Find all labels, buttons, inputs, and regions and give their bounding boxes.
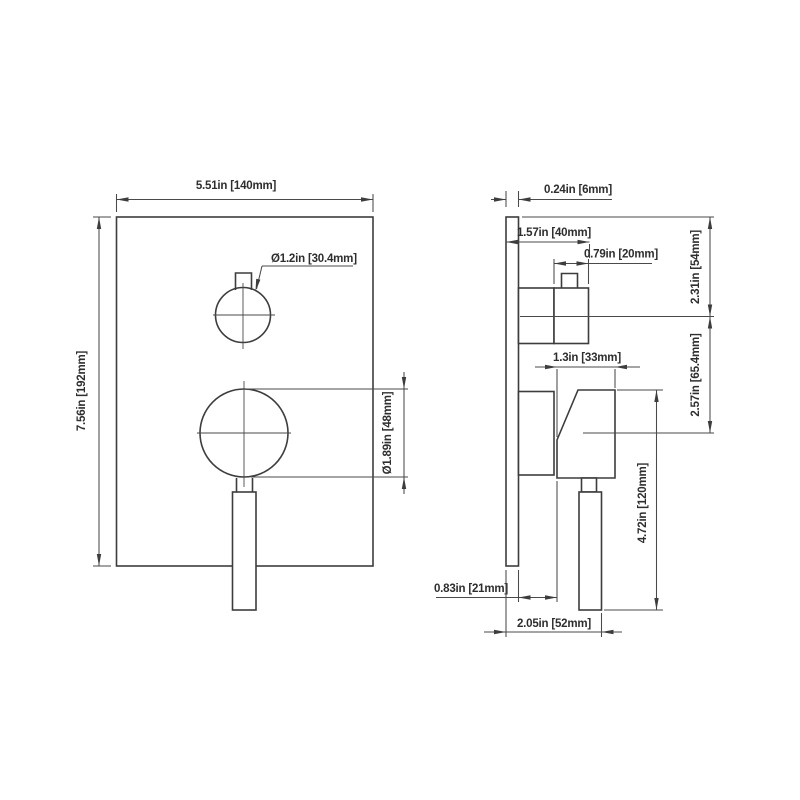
side-handle-rod (579, 492, 602, 610)
dim-knob-width: 0.79in [20mm] (554, 249, 658, 285)
side-lever-neck (582, 478, 597, 492)
dim-plate-thickness: 0.24in [6mm] (491, 184, 612, 207)
label-lever-body-width: 1.3in [33mm] (553, 352, 621, 364)
label-plate-width: 5.51in [140mm] (196, 180, 277, 192)
side-knob-base-block (519, 288, 555, 344)
label-center-to-center: 2.57in [65.4mm] (690, 333, 702, 417)
label-knob-center-from-top: 2.31in [54mm] (690, 230, 702, 304)
front-view: 5.51in [140mm] 7.56in [192mm] Ø1.2in [30… (76, 180, 408, 610)
side-lever-base-block (519, 392, 555, 476)
side-knob-tab (562, 274, 578, 289)
side-lever-body (557, 390, 615, 478)
shower-valve-dimension-drawing: 5.51in [140mm] 7.56in [192mm] Ø1.2in [30… (0, 0, 800, 800)
dim-front-plate-height: 7.56in [192mm] (76, 217, 111, 566)
side-view: 0.24in [6mm] 1.57in [40mm] 0.79in [20mm] (434, 184, 714, 637)
label-handle-length: 4.72in [120mm] (637, 462, 649, 543)
label-knob-projection: 1.57in [40mm] (517, 227, 591, 239)
label-lever-offset: 0.83in [21mm] (434, 583, 508, 595)
label-plate-height: 7.56in [192mm] (76, 350, 88, 431)
technical-drawing: 5.51in [140mm] 7.56in [192mm] Ø1.2in [30… (0, 0, 800, 800)
dim-front-plate-width: 5.51in [140mm] (117, 180, 374, 212)
label-knob-diameter: Ø1.2in [30.4mm] (271, 253, 357, 265)
label-plate-thickness: 0.24in [6mm] (544, 184, 612, 196)
label-knob-width: 0.79in [20mm] (584, 249, 658, 261)
dim-knob-center-from-top: 2.31in [54mm] 2.57in [65.4mm] (690, 217, 712, 433)
label-hub-diameter: Ø1.89in [48mm] (382, 391, 394, 474)
front-lever-handle (233, 478, 257, 610)
front-handle-rod (233, 492, 257, 610)
dim-lever-offset: 0.83in [21mm] (434, 481, 557, 602)
label-handle-projection: 2.05in [52mm] (517, 618, 591, 630)
side-knob-body (554, 288, 589, 344)
side-plate-outline (506, 217, 519, 566)
